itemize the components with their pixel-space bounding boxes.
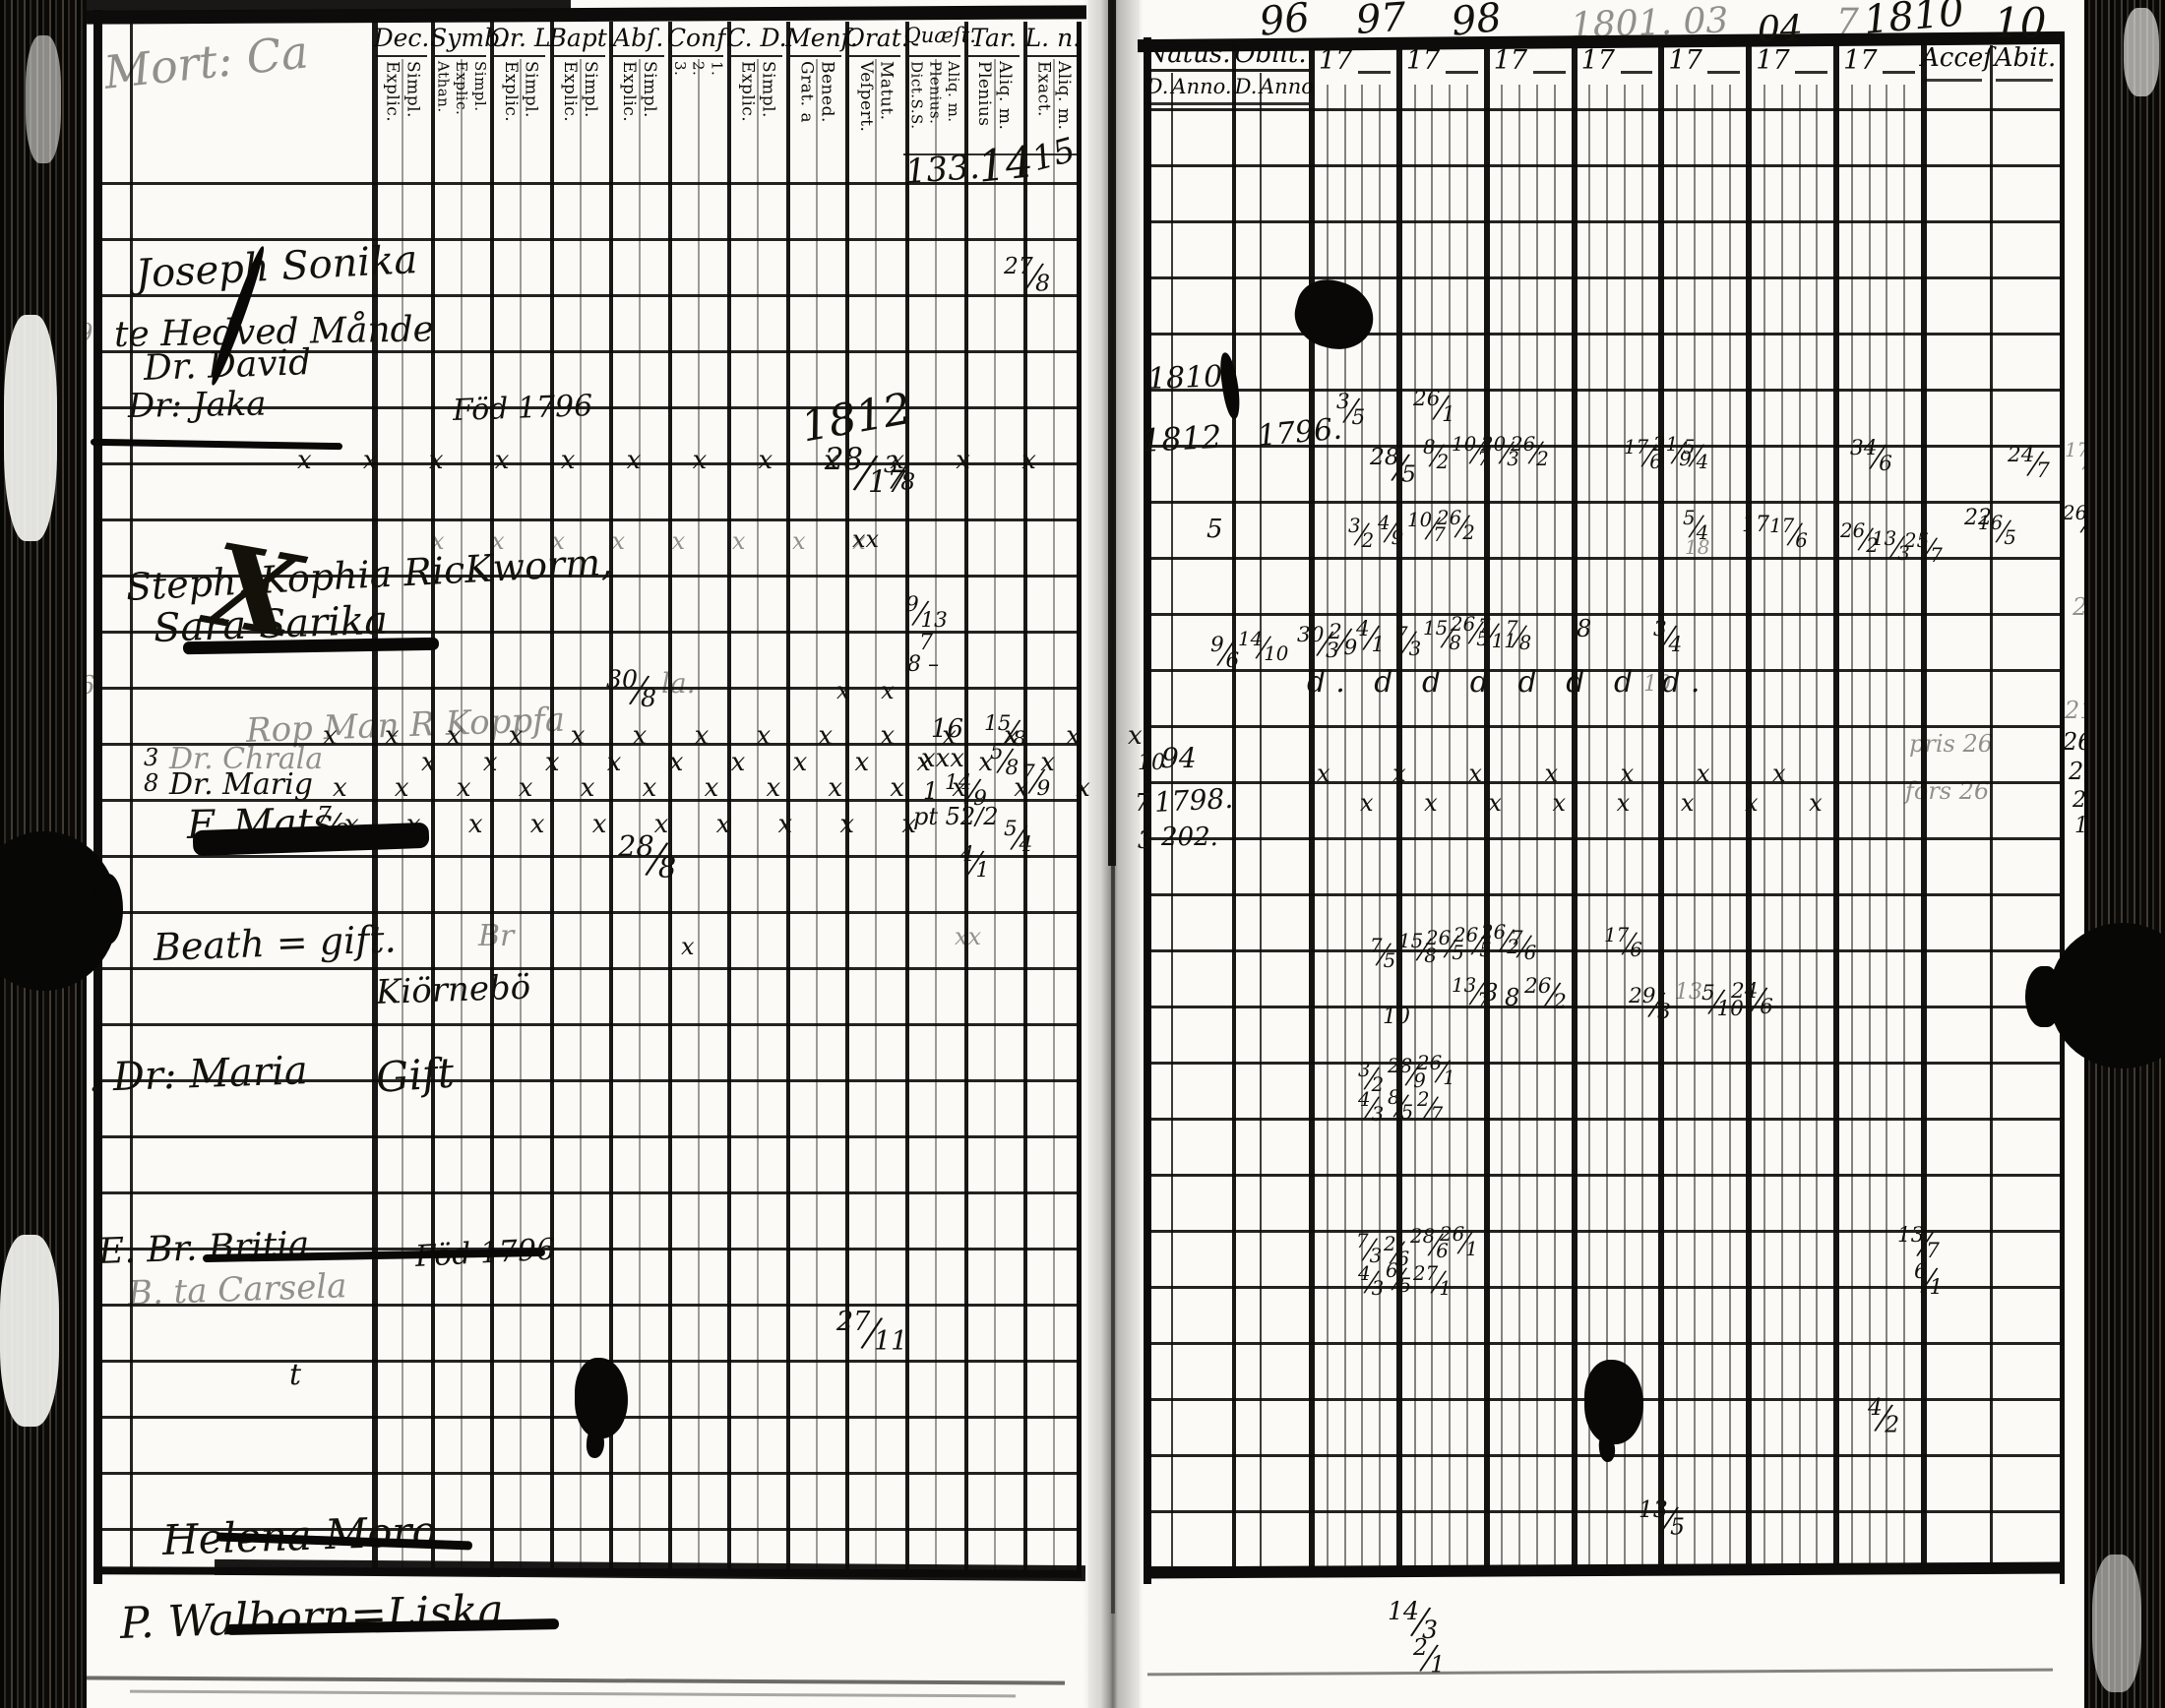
handwritten-entry: 7∕5: [1370, 937, 1395, 972]
year-subcolumn-rule: [1816, 85, 1818, 1566]
handwritten-entry: 26∕2: [1511, 435, 1549, 470]
handwritten-entry: 4∕1: [960, 844, 989, 883]
year-header-underline: [1533, 71, 1566, 74]
handwritten-entry: 8 –: [907, 653, 939, 676]
column-header: Quæſt.: [904, 24, 965, 47]
natus-underline: [1144, 69, 1232, 72]
handwritten-entry: 2∕7: [1417, 1090, 1443, 1126]
year-column-header: 17: [1581, 45, 1615, 76]
handwritten-entry: 3∕5: [1336, 392, 1365, 430]
handwritten-entry: 3∕2: [1348, 517, 1374, 552]
column-subheader-text: 2.: [690, 61, 706, 185]
handwritten-entry: 94: [1161, 744, 1197, 772]
handwritten-entry: 17: [1742, 514, 1769, 536]
handwritten-entry: 26∕1: [1417, 1054, 1455, 1089]
handwritten-entry: 28∕5: [1370, 445, 1416, 486]
column-subheader-text: Simpl.: [522, 61, 539, 185]
handwritten-entry: 24∕7: [2008, 445, 2050, 483]
column-header-underline: [909, 55, 960, 57]
column-subheaders: 3.2.1.: [667, 61, 728, 185]
handwritten-entry: 8: [1577, 617, 1591, 641]
column-subheaders: Grat. aBened.: [785, 61, 846, 185]
gutter-line: [1108, 0, 1116, 866]
natus-anno-subheader: Anno.: [1171, 75, 1232, 98]
year-subcolumn-rule: [1641, 85, 1643, 1566]
year-column-header: 17: [1843, 45, 1877, 76]
handwritten-entry: pris 26: [1909, 732, 1993, 757]
column-subheaders: Explic.Simpl.: [371, 61, 432, 185]
column-subheader-text: Simpl.: [640, 61, 657, 185]
column-header: L. n.: [1022, 24, 1083, 52]
column-subheaders: Athan.Explic.Simpl.: [430, 61, 491, 185]
fraction-numerator: 30: [606, 665, 638, 694]
year-annotation: 97: [1355, 0, 1408, 41]
scanned-parish-register: Natus. D. Anno. Obiit. D. Anno Acceſ Abi…: [0, 0, 2165, 1708]
handwritten-entry: 16∕5: [1978, 514, 2016, 549]
handwritten-entry: 9∕13: [905, 594, 948, 633]
column-header: Symb.: [430, 24, 491, 52]
year-annotation: 1810: [1862, 0, 1965, 41]
column-header-underline: [494, 55, 545, 57]
book-clasp-left-tip: [93, 874, 123, 945]
year-subcolumn-rule: [1624, 85, 1626, 1566]
handwritten-entry: 8: [1483, 981, 1498, 1006]
year-subcolumn-rule: [1466, 85, 1468, 1566]
obiit-day-subheader: D.: [1232, 75, 1260, 98]
year-annotation: 04: [1757, 10, 1803, 48]
year-subcolumn-rule: [1781, 85, 1783, 1566]
mark-row: x x x x x x x x: [1360, 791, 1844, 816]
year-subcolumn-rule: [1449, 85, 1451, 1566]
handwritten-entry: 16: [931, 716, 963, 743]
fraction-numerator: 28: [1370, 443, 1399, 470]
obiit-anno-subheader: Anno: [1260, 75, 1309, 98]
year-subcolumn-rule: [1869, 85, 1871, 1566]
fraction-numerator: 27: [1004, 252, 1033, 279]
handwritten-entry: 26∕2: [1437, 509, 1475, 544]
year-header-underline: [1621, 71, 1653, 74]
year-annotation: 1801. 03: [1570, 2, 1729, 44]
column-subrule: [1053, 59, 1055, 1572]
handwritten-entry: 2∕1: [1413, 1635, 1445, 1677]
handwritten-entry: 13: [1675, 981, 1702, 1004]
handwritten-entry: 7∕6: [1511, 929, 1536, 964]
year-column-border: [1309, 41, 1315, 1568]
handwritten-entry: 6∕1: [1914, 1261, 1943, 1300]
accessit-column-header: Acceſ: [1921, 43, 1990, 73]
column-subheader-text: 3.: [671, 61, 687, 185]
year-subcolumn-rule: [1763, 85, 1765, 1566]
binding-highlight: [2092, 1555, 2141, 1692]
year-header-underline: [1883, 71, 1915, 74]
fraction-denominator: 11: [874, 1326, 907, 1357]
column-header-underline: [968, 55, 1020, 57]
handwritten-entry: 4∕1: [1356, 619, 1385, 657]
column-subheader-text: Simpl.: [403, 61, 421, 185]
year-annotation: 7: [1836, 4, 1859, 41]
handwritten-entry: 1: [923, 779, 938, 804]
column-subheaders: Veſpert.Matut.: [844, 61, 905, 185]
handwritten-entry: 27∕11: [836, 1309, 907, 1357]
handwritten-entry: 8: [1505, 986, 1519, 1010]
year-subcolumn-rule: [1799, 85, 1801, 1566]
handwritten-entry: Gift: [374, 1052, 455, 1101]
column-subheader-text: Veſpert.: [856, 61, 874, 185]
column-subheader-text: Explic.: [383, 61, 401, 185]
column-subheader-text: Explic.: [560, 61, 578, 185]
column-subheader-text: Explic.: [738, 61, 756, 185]
handwritten-entry: 133.: [904, 151, 981, 191]
year-column-header: 17: [1319, 45, 1352, 76]
column-header-underline: [1027, 55, 1079, 57]
year-header-underline: [1446, 71, 1478, 74]
natus-year: 1798.: [1153, 784, 1234, 818]
year-subcolumn-rule: [1588, 85, 1590, 1566]
natus-column-header: Natus.: [1144, 39, 1232, 69]
column-header: Tar.: [963, 24, 1024, 52]
name-entry-beath: Beath = gift.: [153, 920, 397, 967]
handwritten-entry: 14: [976, 140, 1036, 191]
fraction-numerator: 27: [836, 1307, 870, 1337]
mark-row: x x x x x x x x x x x x x x: [323, 723, 1162, 750]
column-subheader-text: 1.: [709, 61, 724, 185]
year-subcolumn-rule: [1694, 85, 1696, 1566]
column-subheaders: Explic.Simpl.: [726, 61, 787, 185]
handwritten-entry: Br: [478, 921, 514, 952]
handwritten-entry: 29∕3: [1629, 986, 1671, 1024]
handwritten-entry: 18: [1685, 537, 1709, 558]
column-header-underline: [376, 55, 427, 57]
year-subcolumn-rule: [1676, 85, 1678, 1566]
name-entry-britia: E. Br. Britia: [97, 1227, 310, 1271]
column-header: C. D.: [726, 24, 787, 52]
column-subheaders: Explic.Simpl.: [549, 61, 610, 185]
binding-highlight: [0, 1235, 59, 1427]
column-header-underline: [613, 55, 664, 57]
column-header-underline: [435, 55, 486, 57]
handwritten-entry: x: [681, 935, 695, 959]
ink-blot: [1584, 1360, 1643, 1444]
handwritten-entry: 5∕4: [1683, 438, 1708, 473]
year-subcolumn-rule: [1554, 85, 1556, 1566]
name-entry-marig: Dr. Marig: [169, 769, 313, 801]
year-subcolumn-rule: [1729, 85, 1731, 1566]
column-header: Dec.: [371, 24, 432, 52]
column-header-underline: [672, 55, 723, 57]
column-subheader-text: Explic.: [619, 61, 637, 185]
binding-highlight: [2124, 8, 2159, 96]
year-subcolumn-rule: [1886, 85, 1887, 1566]
name-entry-maria: B. Dr: Maria: [58, 1050, 308, 1100]
year-header-underline: [1795, 71, 1827, 74]
natus-year: 1812: [1141, 421, 1222, 458]
handwritten-entry: xx: [852, 527, 879, 552]
handwritten-entry: 27∕1: [1413, 1264, 1452, 1300]
year-subcolumn-rule: [1536, 85, 1538, 1566]
handwritten-entry: 10: [1643, 673, 1671, 696]
obiit-underline: [1232, 69, 1309, 72]
column-header-underline: [790, 55, 841, 57]
year-subcolumn-rule: [1903, 85, 1905, 1566]
handwritten-entry: 4∕9: [1378, 514, 1403, 549]
page-number: 10: [1994, 2, 2046, 45]
year-subcolumn-rule: [1518, 85, 1520, 1566]
handwritten-entry: 17∕6: [1769, 517, 1808, 552]
abiit-column-header: Abit.: [1990, 43, 2061, 73]
column-subheader-text: Explic.: [453, 61, 468, 185]
handwritten-entry: 9∕6: [1210, 635, 1239, 673]
natus-day-subheader: D.: [1144, 75, 1171, 98]
handwritten-entry: 202.: [1161, 824, 1218, 851]
d-anno-underline: [1144, 102, 1309, 105]
year-column-header: 17: [1406, 45, 1440, 76]
handwritten-entry: xxx: [921, 746, 964, 772]
fraction-numerator: 28: [618, 829, 654, 863]
handwritten-entry: 5: [1206, 517, 1223, 543]
handwritten-entry: pt 52/2: [913, 805, 999, 829]
column-subheader-text: Grat. a: [797, 61, 815, 185]
column-header: Orat.: [844, 24, 905, 52]
handwritten-entry: 6∕5: [1386, 1261, 1411, 1297]
obiit-sub-divider: [1260, 73, 1262, 1566]
handwritten-entry: 27∕8: [1004, 254, 1050, 295]
mark-row: x x: [836, 679, 906, 703]
column-header-underline: [554, 55, 605, 57]
year-header-underline: [1707, 71, 1740, 74]
handwritten-entry: 10: [1383, 1006, 1410, 1028]
accessit-abiit-divider: [1990, 45, 1993, 1566]
year-subcolumn-rule: [1711, 85, 1713, 1566]
handwritten-entry: fors 26: [1905, 779, 1989, 804]
handwritten-entry: 28∕8: [618, 831, 676, 883]
year-annotation: 98: [1450, 0, 1504, 43]
accessit-underline: [1925, 79, 1982, 82]
handwritten-entry: la.: [661, 669, 696, 698]
handwritten-entry: 4∕3: [1358, 1090, 1384, 1126]
column-header: Or. L: [489, 24, 550, 52]
column-subheader-text: Athan.: [435, 61, 451, 185]
handwritten-entry: 34∕6: [1850, 438, 1892, 476]
fraction-numerator: 14: [1388, 1597, 1419, 1625]
left-margin-rule: [130, 22, 133, 1568]
fraction-numerator: 13: [1639, 1495, 1668, 1523]
year-subcolumn-rule: [1851, 85, 1853, 1566]
column-subheaders: Explic.Simpl.: [489, 61, 550, 185]
name-entry-jaka: Dr: Jaka: [128, 388, 267, 425]
ink-blot: [575, 1358, 628, 1438]
handwritten-entry: 26∕2: [1524, 976, 1567, 1014]
handwritten-entry: 17∕6: [1604, 926, 1642, 961]
year-header-underline: [1358, 71, 1391, 74]
handwritten-entry: Föd 1796: [452, 391, 592, 426]
right-table-right-border: [2060, 35, 2065, 1584]
column-header: Abſ.: [608, 24, 669, 52]
handwritten-entry: 13∕7: [1897, 1225, 1940, 1263]
handwritten-entry: 26∕1: [1440, 1225, 1478, 1260]
year-column-header: 17: [1494, 45, 1527, 76]
year-subcolumn-rule: [1431, 85, 1433, 1566]
handwritten-entry: 24∕6: [1731, 981, 1773, 1019]
column-header: Conf.: [667, 24, 728, 52]
column-header: Bapt.: [549, 24, 610, 52]
handwritten-entry: 3: [144, 746, 158, 770]
mark-row: x x x x x x x x x x x x x: [333, 775, 1110, 802]
handwritten-entry: 4∕3: [1358, 1264, 1384, 1300]
natus-sub-divider: [1171, 73, 1173, 1566]
year-subcolumn-rule: [1606, 85, 1608, 1566]
left-table-left-border: [93, 10, 102, 1584]
name-entry-kiornebo: Kiörnebö: [375, 971, 530, 1011]
column-subheader-text: Simpl.: [759, 61, 776, 185]
year-column-border: [1921, 41, 1927, 1568]
right-binding-edge: [2084, 0, 2165, 1708]
year-annotation: 96: [1258, 0, 1312, 43]
handwritten-entry: 7∕8: [1506, 619, 1531, 654]
handwritten-entry: 25∕7: [1904, 531, 1943, 567]
name-entry-carsela: B. ta Carsela: [127, 1269, 347, 1311]
handwritten-entry: 7∕3: [1395, 625, 1421, 660]
handwritten-entry: t: [289, 1360, 301, 1391]
fraction-denominator: 10: [1264, 642, 1288, 665]
handwritten-entry: 8∕5: [1388, 1088, 1413, 1124]
handwritten-entry: 7: [919, 632, 933, 654]
handwritten-entry: 8: [144, 771, 158, 796]
handwritten-entry: 30∕8: [606, 667, 656, 711]
mark-row: x x x x x x x: [1317, 762, 1814, 786]
year-subcolumn-rule: [1379, 85, 1381, 1566]
handwritten-entry: 4∕2: [1868, 1395, 1899, 1436]
column-header: Menſ.: [785, 24, 846, 52]
column-subheader-text: Explic.: [501, 61, 519, 185]
column-subheader-text: Matut.: [877, 61, 895, 185]
handwritten-entry: xx: [955, 925, 981, 949]
binding-highlight: [26, 35, 61, 163]
handwritten-entry: 2∕9: [1329, 622, 1357, 660]
obiit-year: 1796.: [1257, 414, 1343, 453]
year-column-header: 17: [1668, 45, 1701, 76]
column-header-underline: [849, 55, 900, 57]
column-subheader-text: Simpl.: [581, 61, 598, 185]
column-subheader-text: Bened.: [818, 61, 835, 185]
gutter-line: [1111, 866, 1115, 1614]
year-subcolumn-rule: [1414, 85, 1416, 1566]
abiit-underline: [1996, 79, 2053, 82]
handwritten-entry: 3∕4: [1653, 619, 1682, 657]
binding-highlight: [4, 315, 57, 541]
handwritten-entry: 26∕1: [1413, 389, 1455, 427]
column-header-underline: [731, 55, 782, 57]
handwritten-entry: 14∕10: [1238, 630, 1288, 665]
year-subcolumn-rule: [1501, 85, 1503, 1566]
book-clasp-right-tip: [2025, 966, 2059, 1027]
handwritten-entry: 3∕8: [884, 453, 915, 494]
column-subheader-text: Simpl.: [471, 61, 487, 185]
column-subheaders: Explic.Simpl.: [608, 61, 669, 185]
handwritten-entry: 5∕4: [1004, 819, 1032, 857]
handwritten-entry: 13∕5: [1639, 1497, 1685, 1539]
mark-row: x x x x x x x x x x x x: [297, 448, 1058, 474]
handwritten-entry: 8∕2: [1423, 438, 1449, 473]
